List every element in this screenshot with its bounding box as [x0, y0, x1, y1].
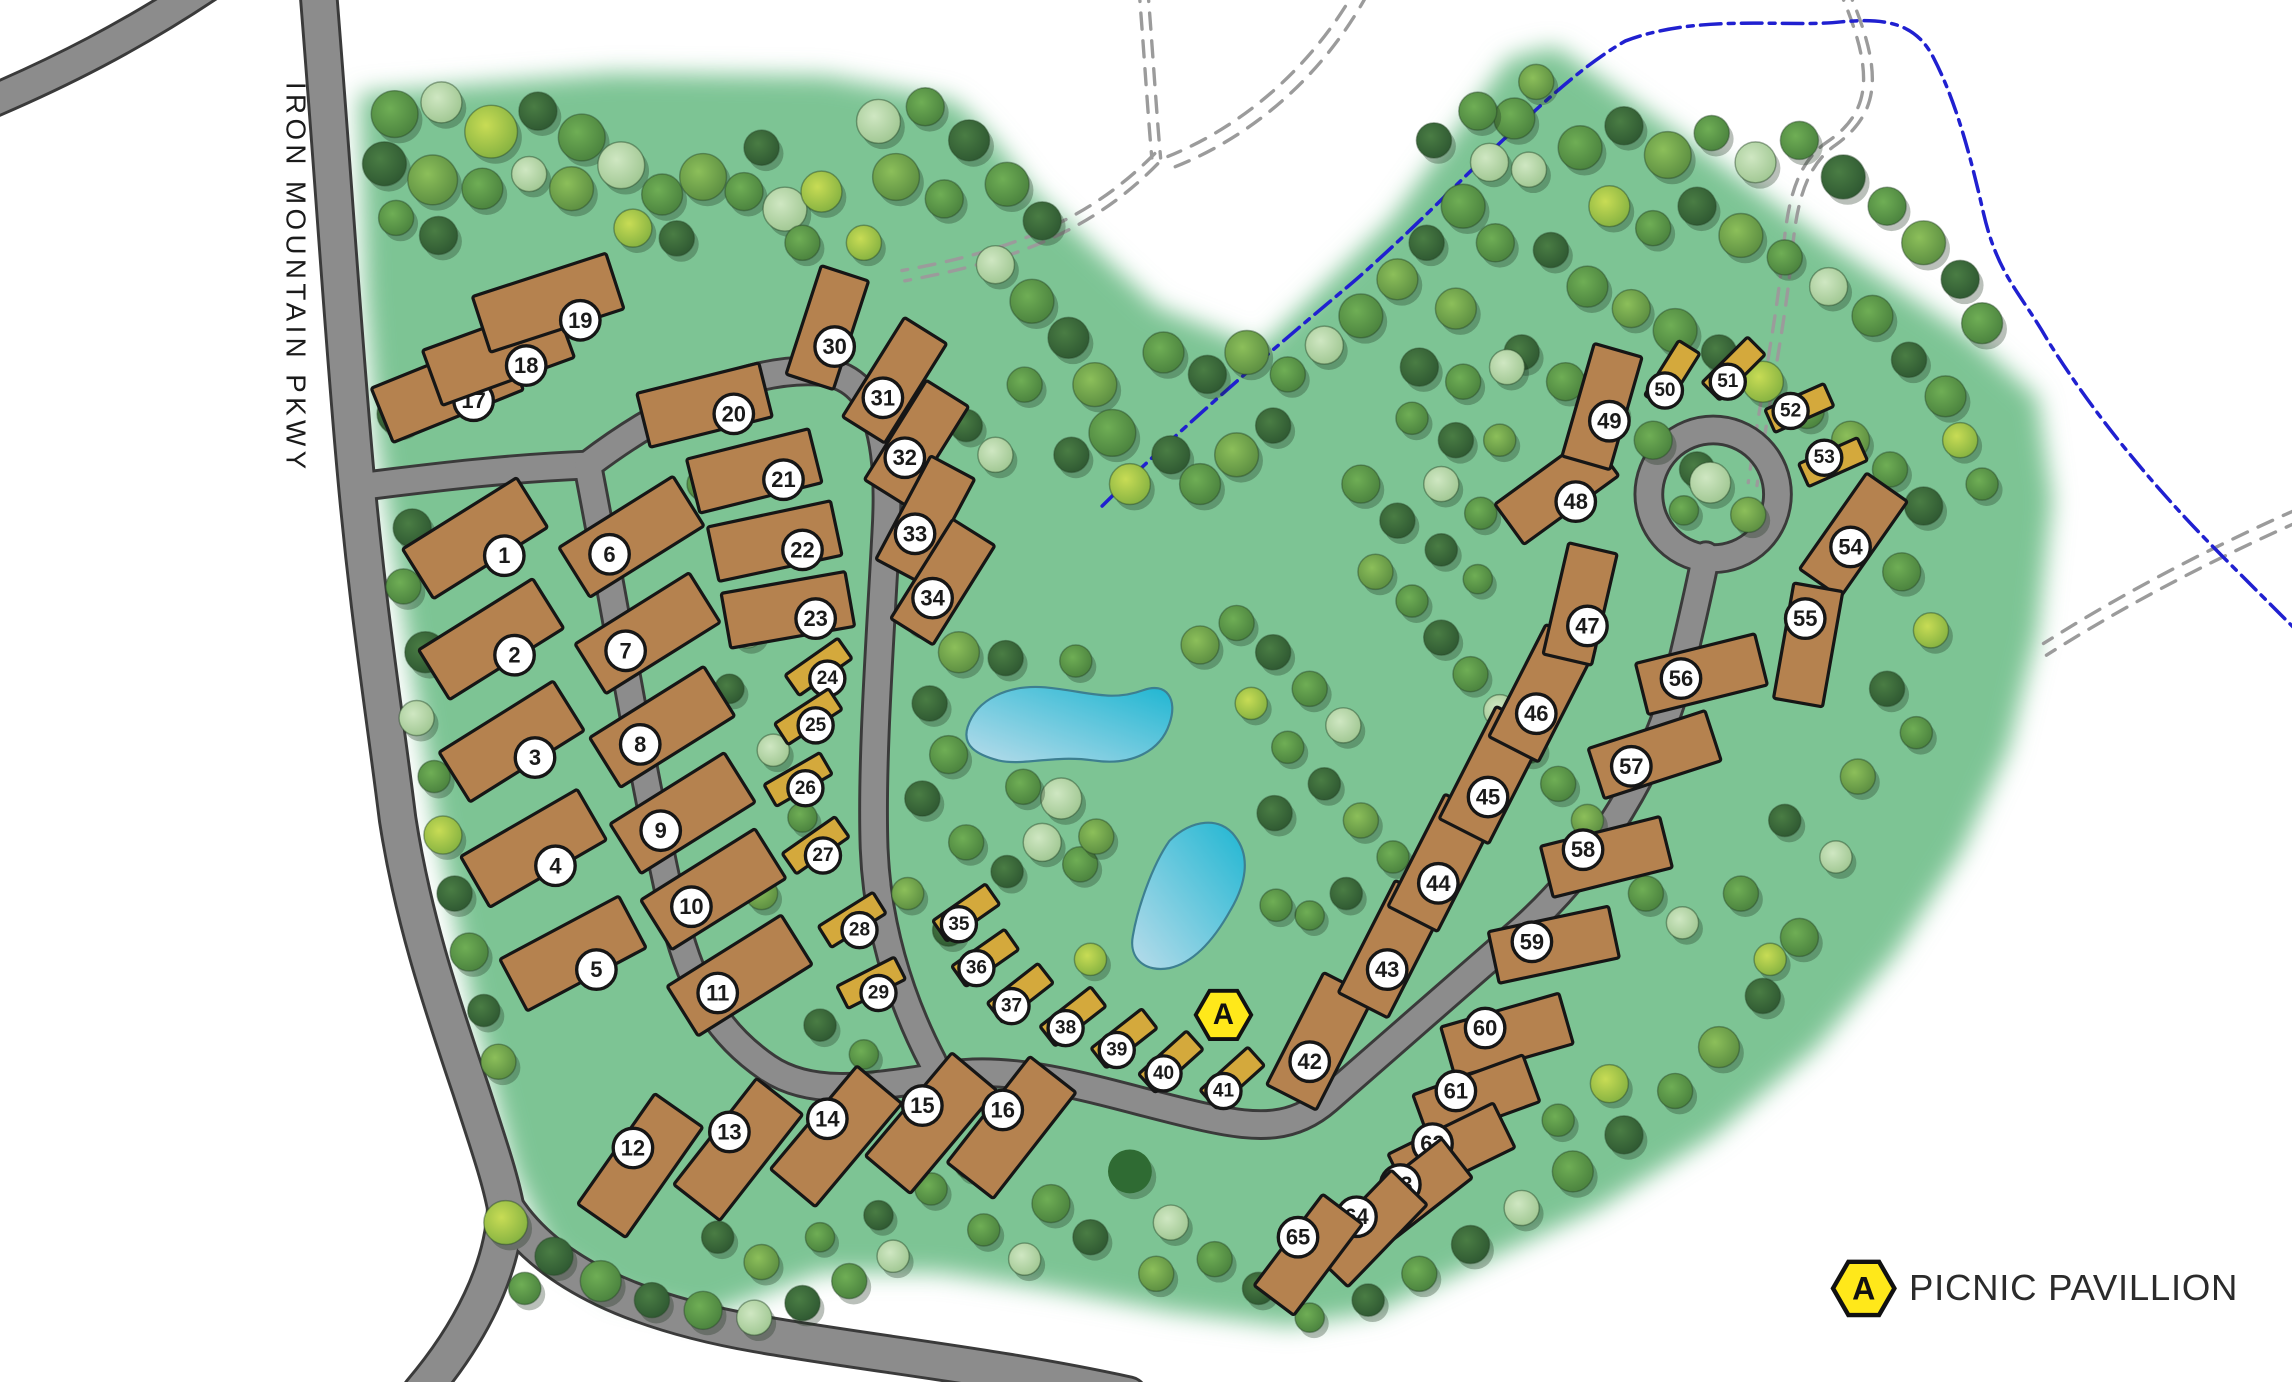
- site-number: 38: [1055, 1018, 1076, 1039]
- site-number: 6: [603, 542, 615, 567]
- site-number: 2: [508, 643, 520, 668]
- road-label: IRON MOUNTAIN PKWY: [281, 82, 312, 474]
- site-number: 16: [991, 1097, 1015, 1122]
- site-number: 23: [803, 606, 827, 631]
- site-number: 57: [1619, 754, 1643, 779]
- site-number: 65: [1286, 1225, 1310, 1250]
- site-number: 41: [1213, 1080, 1235, 1101]
- site-number: 52: [1780, 400, 1801, 421]
- site-number: 18: [514, 353, 538, 378]
- site-number: 30: [822, 334, 846, 359]
- site-number: 11: [706, 980, 729, 1005]
- site-number: 46: [1524, 701, 1548, 726]
- tree-icon: [1941, 260, 1983, 304]
- campground-site-map: IRON MOUNTAIN PKWY1234567891011121314151…: [0, 0, 2292, 1382]
- tree-icon: [1902, 221, 1950, 271]
- legend-label: PICNIC PAVILLION: [1909, 1267, 2238, 1308]
- site-number: 29: [868, 982, 889, 1003]
- site-number: 28: [849, 920, 870, 941]
- trail-path: [1175, 0, 1368, 167]
- site-number: 5: [590, 957, 602, 982]
- site-number: 61: [1444, 1078, 1468, 1103]
- site-number: 39: [1106, 1040, 1127, 1061]
- site-number: 7: [620, 638, 632, 663]
- site-number: 26: [795, 778, 816, 799]
- site-number: 44: [1426, 871, 1451, 896]
- site-number: 40: [1153, 1063, 1174, 1084]
- site-number: 35: [948, 914, 970, 935]
- site-number: 27: [812, 845, 833, 866]
- site-number: 54: [1838, 534, 1863, 559]
- site-number: 1: [498, 543, 510, 568]
- site-number: 36: [966, 958, 987, 979]
- tree-icon: [1416, 123, 1455, 164]
- site-number: 48: [1564, 489, 1588, 514]
- site-number: 21: [771, 467, 795, 492]
- site-number: 8: [634, 732, 646, 757]
- site-number: 53: [1814, 447, 1835, 468]
- site-number: 20: [722, 401, 746, 426]
- site-number: 59: [1520, 929, 1544, 954]
- site-number: 51: [1717, 371, 1739, 392]
- tree-icon: [1780, 121, 1822, 165]
- site-number: 14: [815, 1106, 840, 1131]
- site-number: 33: [903, 521, 927, 546]
- site-number: 49: [1597, 409, 1621, 434]
- site-number: 60: [1473, 1016, 1497, 1041]
- tree-icon: [1821, 155, 1869, 205]
- site-number: 12: [621, 1136, 645, 1161]
- site-number: 55: [1793, 606, 1817, 631]
- site-number: 15: [910, 1093, 934, 1118]
- site-number: 3: [529, 745, 541, 770]
- site-number: 13: [717, 1119, 741, 1144]
- site-number: 43: [1375, 957, 1399, 982]
- site-number: 42: [1298, 1049, 1322, 1074]
- pavilion-letter: A: [1213, 999, 1234, 1031]
- site-number: 58: [1571, 837, 1595, 862]
- site-number: 10: [679, 894, 703, 919]
- site-number: 32: [893, 445, 917, 470]
- site-number: 25: [805, 715, 827, 736]
- site-map-canvas: IRON MOUNTAIN PKWY1234567891011121314151…: [0, 0, 2292, 1382]
- site-number: 24: [817, 668, 839, 689]
- site-number: 22: [790, 537, 814, 562]
- trail-path: [2044, 509, 2292, 644]
- site-number: 9: [655, 818, 667, 843]
- site-number: 47: [1575, 613, 1599, 638]
- tree-icon: [1868, 187, 1910, 231]
- site-number: 37: [1001, 996, 1022, 1017]
- legend-marker-letter: A: [1852, 1270, 1875, 1306]
- trail-path: [1168, 0, 1359, 156]
- site-number: 56: [1669, 666, 1693, 691]
- site-number: 34: [920, 586, 945, 611]
- site-number: 31: [871, 385, 895, 410]
- tree-icon: [509, 1272, 546, 1310]
- site-number: 4: [549, 853, 562, 878]
- legend: APICNIC PAVILLION: [1833, 1262, 2238, 1315]
- road: [0, 0, 212, 105]
- picnic-pavilion-marker: A: [1196, 991, 1252, 1039]
- site-number: 50: [1654, 380, 1675, 401]
- pond: [966, 687, 1172, 762]
- site-number: 45: [1476, 785, 1500, 810]
- site-number: 19: [568, 308, 592, 333]
